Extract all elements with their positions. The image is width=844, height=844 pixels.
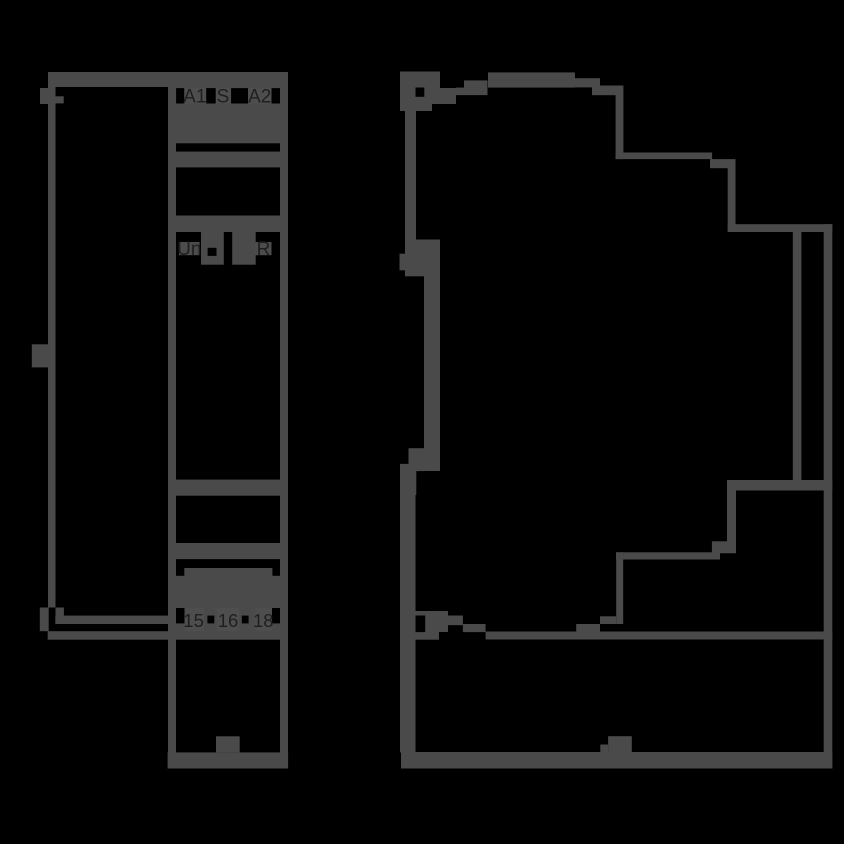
svg-text:R: R [257, 239, 271, 260]
svg-text:A2: A2 [248, 87, 271, 108]
svg-text:16: 16 [218, 610, 239, 631]
svg-text:A1: A1 [183, 87, 206, 108]
svg-text:15: 15 [183, 610, 204, 631]
svg-text:18: 18 [253, 610, 274, 631]
svg-text:Un: Un [177, 239, 201, 260]
svg-text:S: S [217, 87, 230, 108]
